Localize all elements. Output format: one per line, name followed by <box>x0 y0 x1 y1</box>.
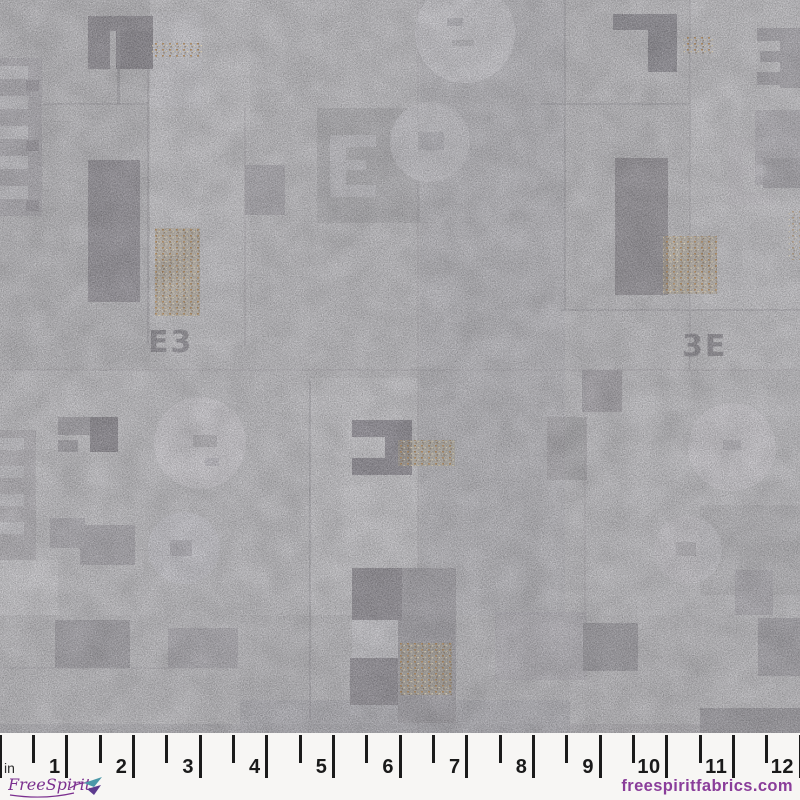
freespirit-logo-art: FreeSpirit <box>8 775 112 800</box>
ruler-number: 9 <box>550 757 594 777</box>
ruler-unit-label: in <box>4 761 15 775</box>
fabric-swatch-photo: E3 3E 123456789101112 in FreeSpirit <box>0 0 800 800</box>
fabric-pattern: E3 3E <box>0 0 800 733</box>
ruler-number: 10 <box>617 757 661 777</box>
ruler-tick-inch <box>399 735 402 778</box>
freespirit-logo-text: FreeSpirit <box>8 775 92 794</box>
fabric-swatch: E3 3E <box>0 0 800 733</box>
freespirit-logo: FreeSpirit <box>8 775 112 800</box>
ruler-tick-inch <box>599 735 602 778</box>
ruler-number: 3 <box>150 757 194 777</box>
ruler-number: 8 <box>483 757 527 777</box>
ruler-number: 5 <box>283 757 327 777</box>
ruler-number: 12 <box>750 757 794 777</box>
ruler-tick-inch <box>732 735 735 778</box>
ruler-tick-inch <box>665 735 668 778</box>
ruler-tick-inch <box>132 735 135 778</box>
ruler-number: 4 <box>217 757 261 777</box>
website-url: freespiritfabrics.com <box>621 778 793 795</box>
ruler-number: 7 <box>417 757 461 777</box>
ruler-tick-inch <box>332 735 335 778</box>
ruler-tick-inch <box>65 735 68 778</box>
ruler-tick-inch <box>199 735 202 778</box>
ruler: 123456789101112 in FreeSpirit freespirit… <box>0 733 800 800</box>
ruler-tick-inch <box>532 735 535 778</box>
ruler-number: 11 <box>683 757 727 777</box>
ruler-number: 6 <box>350 757 394 777</box>
ruler-number: 2 <box>83 757 127 777</box>
ruler-tick-inch <box>0 735 2 778</box>
fabric-noise-texture <box>0 0 800 733</box>
ruler-tick-inch <box>265 735 268 778</box>
ruler-tick-inch <box>465 735 468 778</box>
ruler-number: 1 <box>17 757 61 777</box>
